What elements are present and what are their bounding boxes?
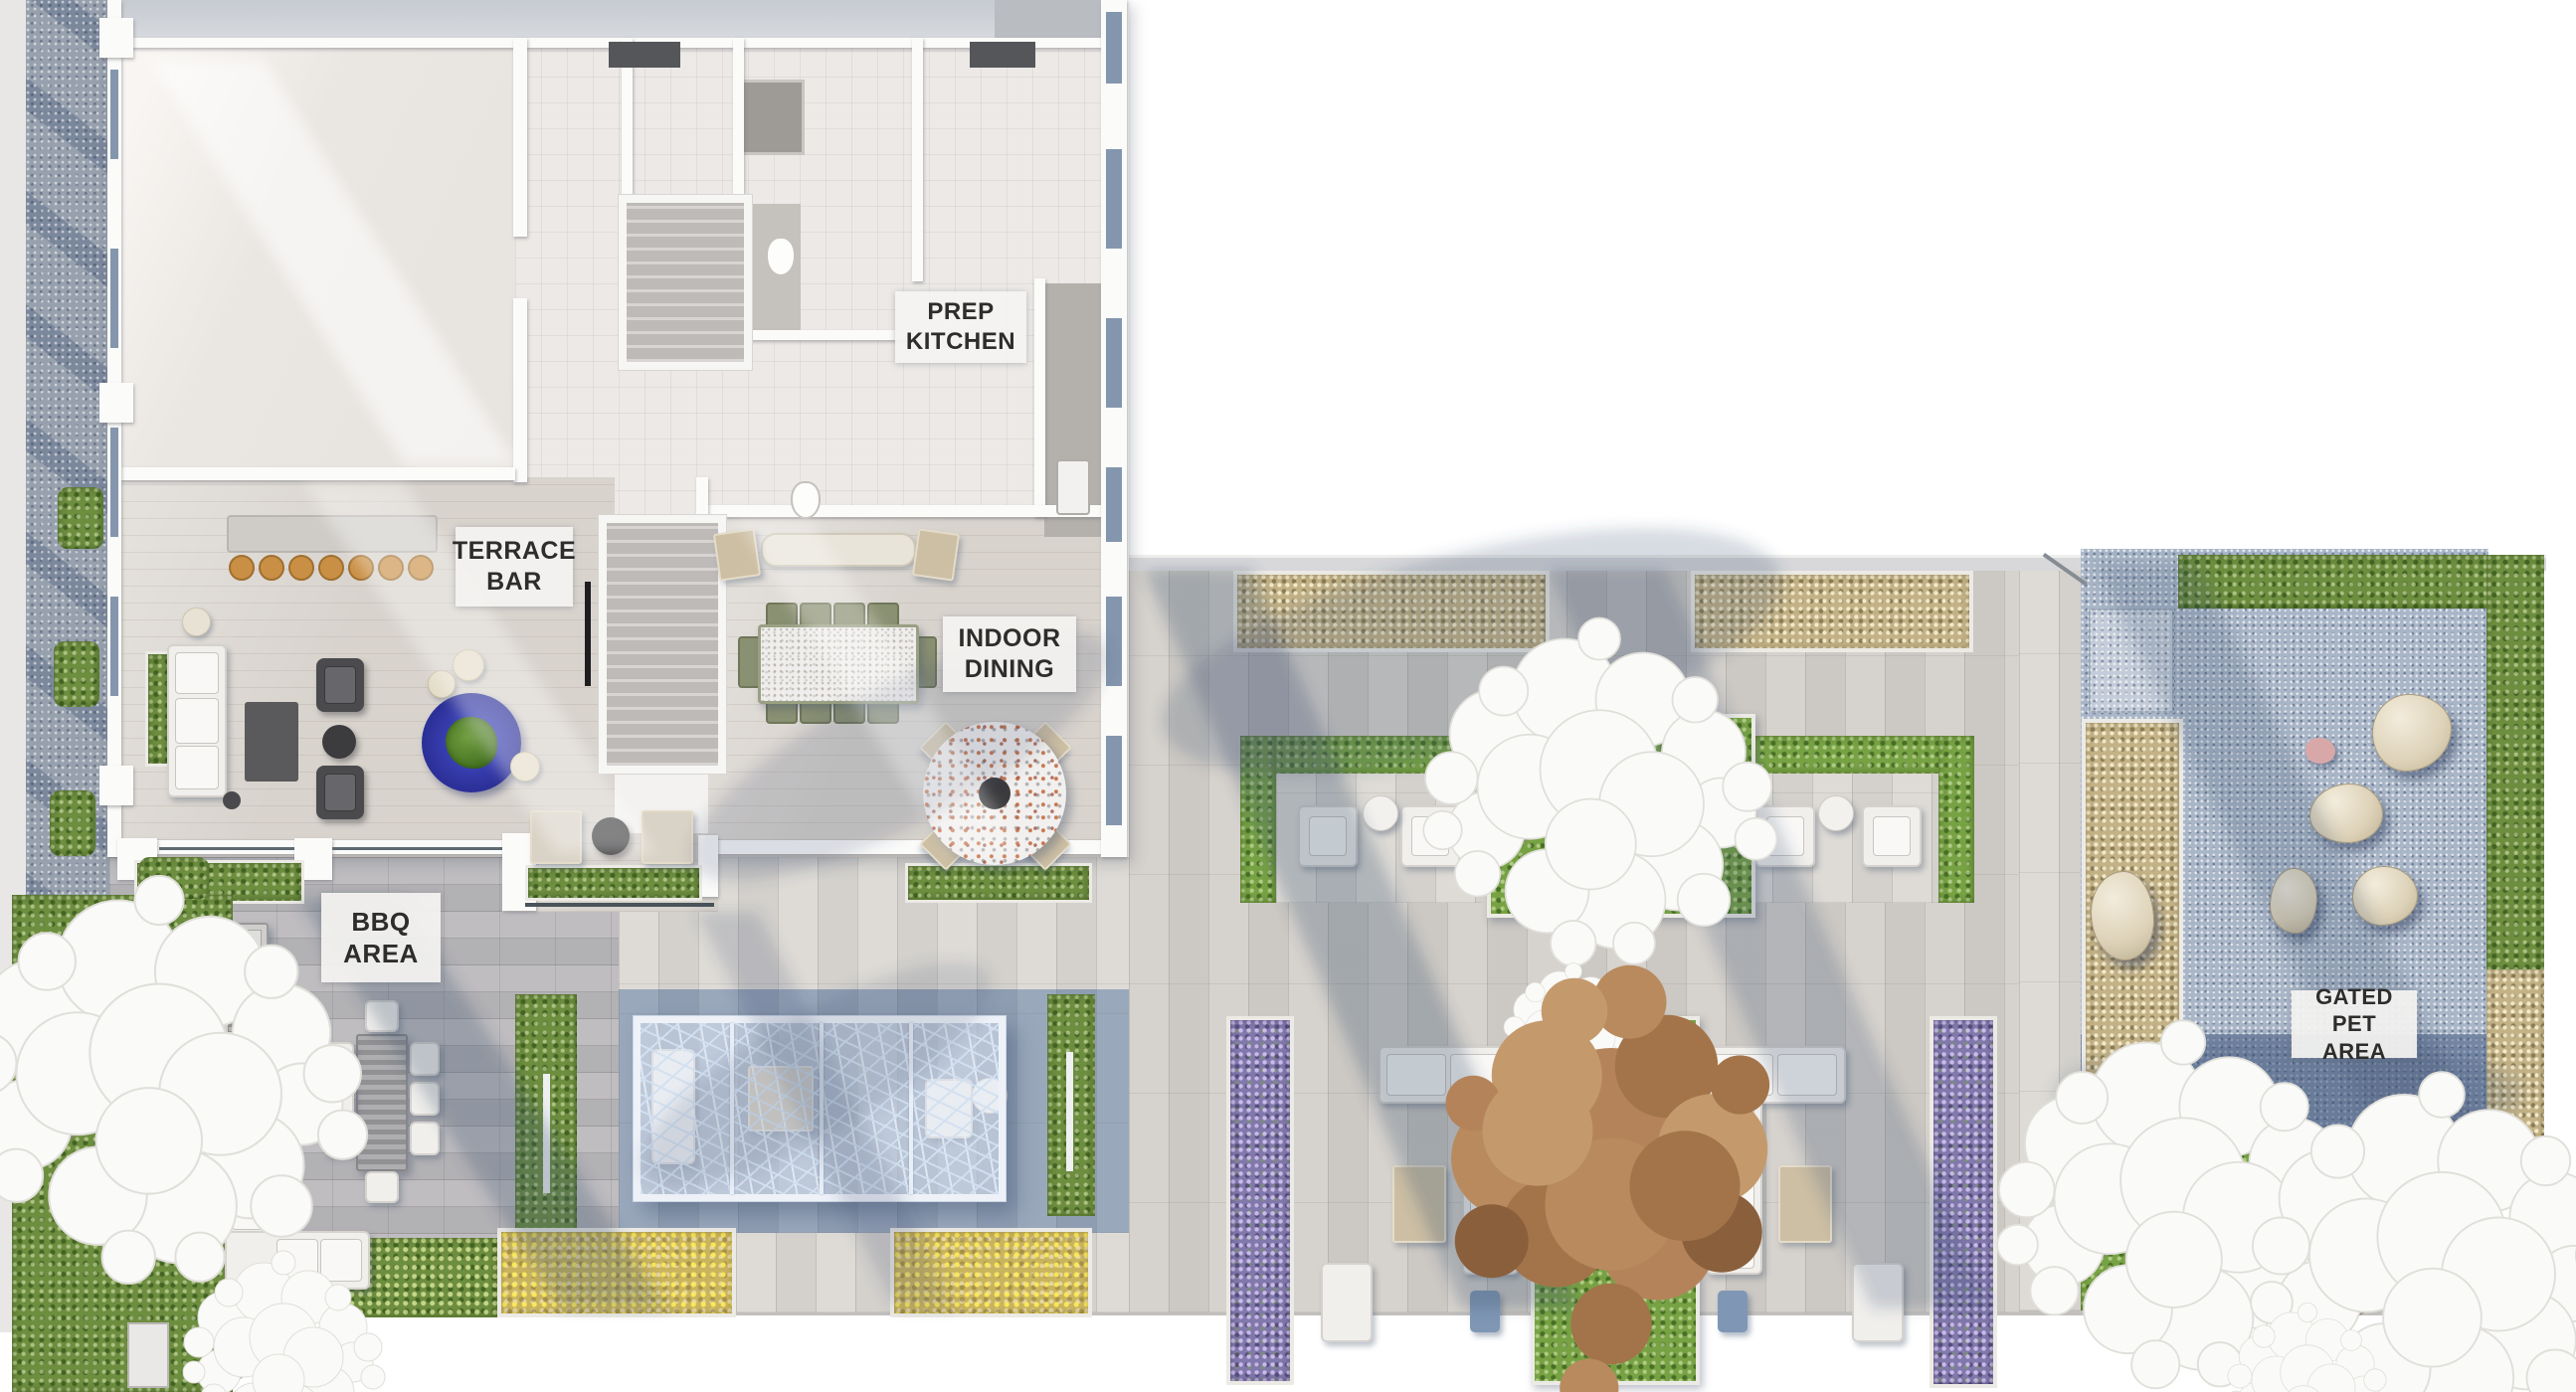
banquette-chair-right xyxy=(912,528,960,581)
bbq-dining-table xyxy=(356,1034,408,1171)
nook-chair-left xyxy=(530,810,582,864)
lounge-armchair-top xyxy=(316,658,364,712)
west-post-2 xyxy=(99,383,133,423)
west-window-2 xyxy=(110,249,118,348)
toilet-dining-bath xyxy=(791,481,821,519)
wall-living-bottom xyxy=(117,467,515,480)
label-terrace-bar: TERRACE BAR xyxy=(456,527,573,607)
dining-table xyxy=(758,624,919,704)
pet-area-light-patch xyxy=(2089,609,2174,713)
yellow-planter-right xyxy=(890,1228,1092,1317)
yellow-planter-left xyxy=(497,1228,736,1317)
lowerleft-table xyxy=(1392,1165,1446,1243)
wall-dining-north xyxy=(708,505,1101,517)
sidewalk-tuft-1 xyxy=(58,487,103,549)
banquette xyxy=(761,533,916,567)
top-grass-planter-right xyxy=(1691,571,1973,652)
wall-hall-2 xyxy=(912,38,923,281)
sidewalk-tuft-3 xyxy=(50,790,95,856)
pouf-cream-2 xyxy=(428,670,456,698)
lowerleft-ottoman xyxy=(1321,1263,1373,1342)
pet-rock-mid xyxy=(2309,783,2383,843)
stairs-upper xyxy=(619,195,752,370)
label-bbq-area: BBQ AREA xyxy=(321,893,441,982)
dining-south-hedge xyxy=(905,863,1092,903)
pouf-cream-3 xyxy=(510,752,540,782)
upperright-chair-1 xyxy=(1755,805,1815,867)
wall-bath-bottom xyxy=(738,330,917,340)
purple-planter-left xyxy=(1226,1016,1294,1385)
lower-tree-planter xyxy=(1531,1016,1700,1385)
toilet-upper xyxy=(766,237,796,276)
pouf-cream-1 xyxy=(453,649,484,681)
bbq-chair-l3 xyxy=(324,1122,354,1155)
banquette-chair-left xyxy=(713,528,761,581)
lowerleft-sofa-top xyxy=(1379,1046,1519,1104)
bar-stools xyxy=(229,555,433,579)
bar-counter xyxy=(227,515,438,553)
upperright-side-table xyxy=(1818,795,1854,831)
upperleft-side-table xyxy=(1363,795,1398,831)
east-facade xyxy=(1101,0,1127,857)
pergola-hedge-left-bench xyxy=(543,1074,550,1193)
label-indoor-dining: INDOOR DINING xyxy=(943,616,1076,692)
lowerright-sofa-top xyxy=(1706,1046,1846,1104)
hedge-L-upperleft-side xyxy=(1240,736,1276,903)
hedge-L-upperleft-top xyxy=(1240,736,1482,774)
nook-glass-line xyxy=(525,903,714,907)
center-tree-planter xyxy=(1487,714,1755,918)
lowerright-table xyxy=(1778,1165,1832,1243)
wall-kitchen-left xyxy=(1034,278,1045,517)
round-table-center xyxy=(979,778,1011,809)
upperleft-chair-1 xyxy=(1298,805,1358,867)
garden-bed-southwest xyxy=(12,895,233,1392)
sidewalk-tuft-top xyxy=(139,857,209,899)
nook-chair-right xyxy=(642,810,693,864)
east-window-4 xyxy=(1106,467,1122,542)
west-post-3 xyxy=(99,766,133,805)
upperright-chair-2 xyxy=(1862,805,1922,867)
west-window-3 xyxy=(110,428,118,537)
pet-hedge-right xyxy=(2486,555,2544,972)
pet-toy xyxy=(2305,738,2335,764)
bbq-chair-r1 xyxy=(410,1042,440,1076)
pergola-walkway xyxy=(736,1233,895,1312)
wall-living-right-upper xyxy=(513,38,527,237)
stairs-lower xyxy=(599,515,726,774)
side-table-cream xyxy=(182,608,211,636)
purple-planter-right xyxy=(1930,1016,1997,1388)
sidewalk-tuft-2 xyxy=(54,641,99,707)
west-window-4 xyxy=(110,597,118,696)
east-window-1 xyxy=(1106,12,1122,84)
bbq-counter xyxy=(221,923,269,1078)
counter-dark-1 xyxy=(609,42,680,68)
pergola-hedge-right-bench xyxy=(1066,1052,1073,1171)
kitchen-sink xyxy=(1056,459,1090,515)
potted-plant xyxy=(446,717,497,769)
hall-tile-floor xyxy=(515,38,1101,517)
east-window-3 xyxy=(1106,318,1122,408)
lounge-sofa xyxy=(167,644,227,797)
garden-gate xyxy=(127,1322,169,1388)
lowerleft-pouf-blue xyxy=(1470,1291,1500,1332)
pet-bottom-lawn xyxy=(2081,1148,2488,1310)
nook-table xyxy=(592,817,630,855)
floor-plan-canvas: PREP KITCHEN TERRACE BAR INDOOR DINING B… xyxy=(0,0,2576,1392)
west-window-1 xyxy=(110,70,118,159)
bbq-chair-r2 xyxy=(410,1082,440,1116)
east-window-5 xyxy=(1106,597,1122,686)
east-window-2 xyxy=(1106,149,1122,249)
bbq-chair-l2 xyxy=(324,1082,354,1116)
label-prep-kitchen: PREP KITCHEN xyxy=(895,291,1026,363)
pet-walkway xyxy=(2019,567,2081,1310)
lowerright-pouf-blue xyxy=(1718,1291,1748,1332)
lounge-coffee-table xyxy=(322,725,356,759)
bbq-chair-end-bottom xyxy=(365,1171,399,1203)
lounge-armchair-bottom xyxy=(316,766,364,819)
hedge-L-upperright-side xyxy=(1938,736,1974,903)
sidewalk-gravel xyxy=(26,0,109,905)
label-gated-pet-area: GATED PET AREA xyxy=(2292,990,2417,1058)
lounge-pouf-dark xyxy=(223,791,241,809)
top-grass-planter-left xyxy=(1233,571,1550,652)
pet-hedge-right-dry xyxy=(2486,969,2544,1153)
bbq-sectional-horizontal xyxy=(225,1231,370,1290)
upperleft-chair-2 xyxy=(1400,805,1460,867)
stairs-handrail xyxy=(585,582,591,686)
pet-rock-small-left xyxy=(2270,868,2317,934)
pergola-canopy xyxy=(634,1016,1006,1201)
nook-hedge xyxy=(525,865,702,901)
west-post-1 xyxy=(99,18,133,58)
east-window-6 xyxy=(1106,736,1122,825)
counter-dark-2 xyxy=(970,42,1035,68)
bbq-chair-end-top xyxy=(365,1000,399,1032)
lowerright-ottoman xyxy=(1852,1263,1904,1342)
lounge-rug xyxy=(245,702,298,782)
living-room-floor xyxy=(119,46,515,468)
bbq-chair-r3 xyxy=(410,1122,440,1155)
building-top-corridor xyxy=(119,0,1104,38)
lowerright-sofa-side xyxy=(1706,1100,1762,1275)
bbq-chair-l1 xyxy=(324,1042,354,1076)
wall-living-right-lower xyxy=(513,298,527,482)
lowerleft-sofa-side xyxy=(1462,1100,1519,1275)
